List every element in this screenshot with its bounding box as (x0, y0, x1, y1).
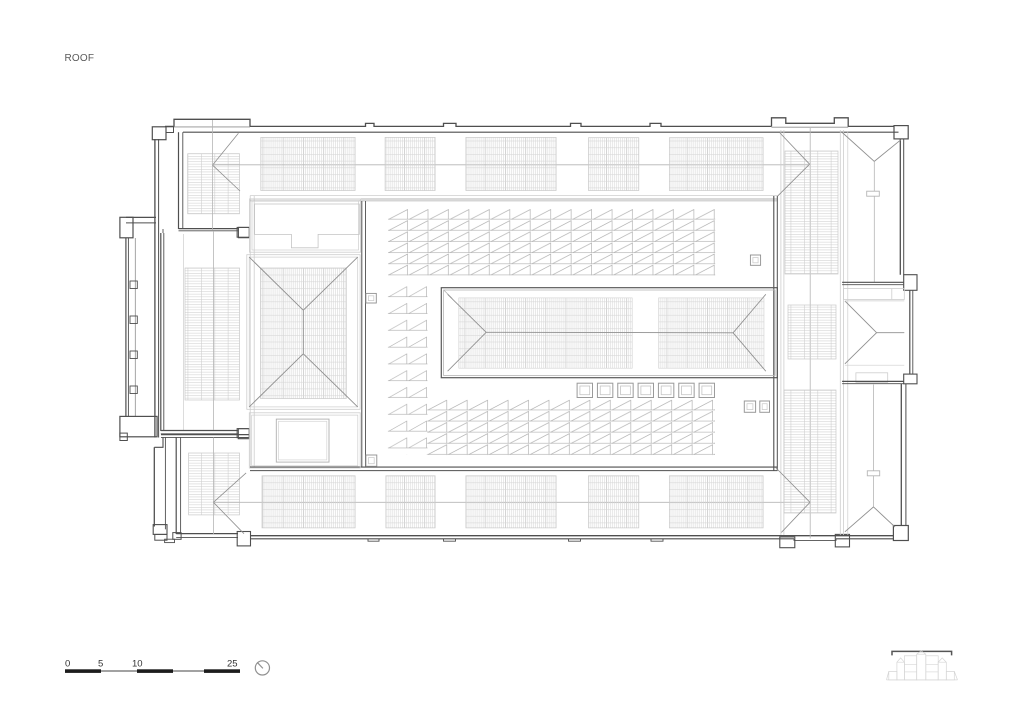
svg-text:25: 25 (227, 659, 238, 670)
svg-text:10: 10 (132, 659, 143, 670)
svg-text:ROOF: ROOF (65, 53, 95, 64)
svg-text:5: 5 (98, 659, 103, 670)
svg-text:0: 0 (65, 659, 70, 670)
